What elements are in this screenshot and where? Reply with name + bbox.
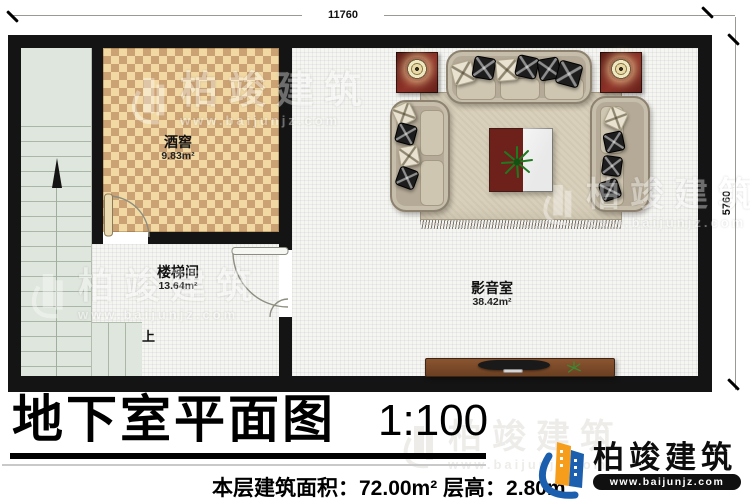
wall-interior-vertical-upper [279, 48, 292, 250]
dimension-line-right [735, 17, 736, 390]
building-stats-line: 本层建筑面积：72.00m² 层高：2.80m [212, 472, 566, 502]
room-name: 酒窖 [118, 134, 238, 150]
lamp-icon [405, 57, 429, 81]
room-label-media-room: 影音室 38.42m² [432, 280, 552, 308]
room-label-stairwell: 楼梯间 13.64m² [118, 264, 238, 292]
wall-cellar-bottom [148, 232, 292, 244]
page-title: 地下室平面图 [12, 394, 336, 445]
wall-cellar-left [92, 48, 103, 244]
dimension-tick-icon [727, 378, 740, 391]
wall-outer-bottom [8, 376, 712, 392]
wall-interior-vertical-lower [279, 317, 292, 376]
wall-cellar-bottom-left-stub [92, 232, 103, 244]
pillow [602, 130, 626, 154]
dimension-label-right: 5760 [720, 178, 734, 228]
room-area: 9.83m² [118, 150, 238, 162]
rug-fringe [420, 220, 622, 229]
dimension-tick-icon [727, 33, 740, 46]
lamp-icon [609, 57, 633, 81]
dimension-tick-icon [6, 10, 19, 23]
stair-rail [56, 168, 57, 376]
brand-logo-icon [533, 438, 591, 500]
plant-icon [499, 144, 535, 180]
floorplan-page: 11760 5760 [0, 0, 750, 502]
pillow [601, 155, 624, 178]
wall-outer-right [698, 35, 712, 392]
pillow [471, 55, 496, 80]
room-name: 楼梯间 [118, 264, 238, 280]
room-area: 13.64m² [118, 280, 238, 292]
tv-stand [503, 369, 523, 373]
scale-label: 1:100 [378, 399, 488, 443]
room-area: 38.42m² [432, 296, 552, 308]
pillow [514, 54, 540, 80]
dimension-label-top: 11760 [302, 8, 384, 22]
stairs-up-label: 上 [142, 326, 155, 345]
wall-outer-left [8, 35, 21, 392]
title-rule-thick [10, 453, 486, 459]
room-name: 影音室 [432, 280, 552, 296]
pillow [397, 144, 420, 167]
dimension-tick-icon [701, 6, 714, 19]
plant-icon [566, 360, 582, 376]
stair-winder [92, 322, 142, 376]
brand-logo: 柏竣建筑 www.baijunjz.com [533, 438, 747, 500]
room-label-wine-cellar: 酒窖 9.83m² [118, 134, 238, 162]
brand-name: 柏竣建筑 [593, 442, 737, 473]
wall-outer-top [8, 35, 712, 48]
title-rule-thin [2, 464, 486, 466]
brand-url: www.baijunjz.com [593, 474, 741, 490]
